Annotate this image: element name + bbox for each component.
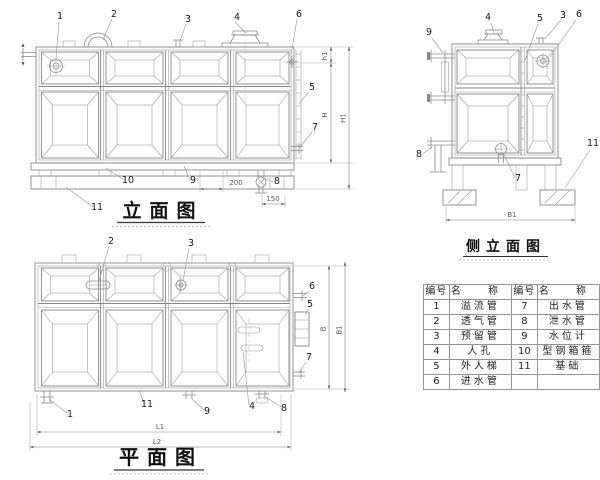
tank-panel (171, 52, 228, 84)
tank-panel (106, 52, 163, 84)
col-header-name: 名 称 (537, 285, 599, 300)
side-elevation-view: B1 9 4 5 3 6 8 7 11 侧立面图 (416, 9, 599, 260)
tank-panel (236, 92, 289, 158)
vent-pipe-arch (84, 33, 112, 47)
table-row: 1 溢流管 7 出水管 (424, 300, 600, 315)
drain-pipe-plan (255, 391, 269, 403)
overflow-pipe-stub (21, 43, 36, 66)
part-number: 10 (512, 345, 538, 360)
tank-panel (527, 50, 553, 84)
tank-panel (42, 92, 99, 158)
part-number: 11 (512, 360, 538, 375)
external-ladder-plan (295, 312, 309, 346)
part-number: 4 (424, 345, 450, 360)
table-row: 3 预留管 9 水位计 (424, 330, 600, 345)
drain-pipe (427, 137, 455, 172)
dimension-label: h1 (321, 52, 329, 61)
dimension-label: 150 (266, 195, 279, 203)
callout-number: 7 (306, 352, 312, 363)
part-number: 8 (512, 315, 538, 330)
dimension-label: H (321, 112, 329, 117)
part-number: 1 (424, 300, 450, 315)
col-header-number: 编号 (424, 285, 450, 300)
callout-number: 1 (57, 11, 63, 22)
tank-panel (171, 92, 228, 158)
callout-number: 5 (537, 13, 543, 24)
callout-number: 8 (416, 149, 422, 160)
col-header-name: 名 称 (449, 285, 511, 300)
drain-valve (255, 171, 267, 193)
dimension-label: B1 (507, 211, 516, 219)
tank-panel (42, 268, 99, 301)
tank-panel (457, 50, 519, 84)
callout-number: 11 (587, 138, 599, 149)
callout-number: 5 (309, 82, 315, 93)
callout-number: 1 (67, 409, 73, 420)
part-name: 溢流管 (449, 300, 511, 315)
drawing-canvas: h1 H H1 200 150 1 2 3 4 6 5 7 10 9 8 11 (0, 0, 600, 480)
dimension-label: B1 (336, 325, 344, 334)
callout-number: 9 (190, 175, 196, 186)
inlet-pipe-fitting (293, 290, 307, 301)
dimension-label: H1 (340, 113, 348, 123)
external-ladder (521, 51, 525, 150)
tank-panel (171, 268, 228, 301)
callout-number: 7 (312, 122, 318, 133)
reserve-pipe-stub (173, 40, 183, 47)
view-title: 平面图 (119, 445, 203, 469)
tank-panel (527, 94, 553, 153)
plan-dimensions: L1 L2 B B1 (30, 262, 349, 451)
tank-panel (236, 310, 289, 386)
callout-number: 11 (91, 202, 103, 213)
callout-number: 5 (307, 299, 313, 310)
elevation-view: h1 H H1 200 150 1 2 3 4 6 5 7 10 9 8 11 (21, 9, 353, 227)
drawing-sheet: h1 H H1 200 150 1 2 3 4 6 5 7 10 9 8 11 (0, 0, 600, 480)
callout-number: 6 (309, 281, 315, 292)
part-name: 进水管 (449, 375, 511, 390)
part-number: 6 (424, 375, 450, 390)
part-name: 泄水管 (537, 315, 599, 330)
tank-panel (171, 310, 228, 386)
callout-number: 4 (249, 401, 255, 412)
side-title: 侧立面图 (459, 238, 551, 260)
reserve-pipe-stub (536, 38, 546, 44)
outlet-pipe-fitting (293, 369, 305, 379)
callout-number: 8 (281, 403, 287, 414)
base-channel (31, 163, 294, 176)
callout-number: 8 (274, 176, 280, 187)
reserve-pipe-opening (174, 278, 188, 292)
part-name: 基础 (537, 360, 599, 375)
part-number: 5 (424, 360, 450, 375)
part-name: 水位计 (537, 330, 599, 345)
table-row: 5 外人梯 11 基础 (424, 360, 600, 375)
tank-panel (236, 268, 289, 301)
part-name: 型钢箱箍 (537, 345, 599, 360)
tank-panel (106, 268, 163, 301)
callout-number: 9 (426, 27, 432, 38)
part-number (512, 375, 538, 390)
plan-view: L1 L2 B B1 2 3 6 5 7 1 11 9 4 8 平面图 (30, 236, 349, 474)
manhole (478, 30, 508, 44)
plan-title: 平面图 (110, 445, 208, 474)
callout-number: 11 (141, 399, 153, 410)
level-gauge-plan (182, 391, 196, 399)
callout-number: 4 (485, 12, 491, 23)
tank-panel (457, 94, 519, 153)
tank-panel (42, 310, 99, 386)
part-name: 透气管 (449, 315, 511, 330)
view-title: 立面图 (122, 199, 203, 222)
part-name (537, 375, 599, 390)
manhole-plan (238, 318, 263, 362)
table-row: 6 进水管 (424, 375, 600, 390)
dimension-label: L1 (156, 423, 164, 431)
part-name: 外人梯 (449, 360, 511, 375)
parts-table: 编号 名 称 编号 名 称 1 溢流管 7 出水管 2 透气管 8 泄水管 3 … (423, 284, 600, 390)
callout-number: 2 (111, 9, 117, 20)
view-title: 侧立面图 (466, 238, 546, 255)
table-row: 2 透气管 8 泄水管 (424, 315, 600, 330)
foundation (31, 176, 294, 189)
callout-number: 2 (108, 236, 114, 247)
part-number: 9 (512, 330, 538, 345)
tank-panel (106, 92, 163, 158)
callout-number: 3 (560, 10, 566, 21)
dimension-label: B (320, 326, 328, 331)
external-ladder (296, 50, 301, 160)
part-name: 预留管 (449, 330, 511, 345)
callout-number: 3 (188, 238, 194, 249)
part-number: 7 (512, 300, 538, 315)
table-row: 4 人孔 10 型钢箱箍 (424, 345, 600, 360)
callout-number: 3 (185, 14, 191, 25)
tank-panel (106, 310, 163, 386)
table-header-row: 编号 名 称 编号 名 称 (424, 285, 600, 300)
callout-number: 4 (234, 12, 240, 23)
part-number: 3 (424, 330, 450, 345)
callout-number: 10 (122, 175, 134, 186)
callout-number: 9 (204, 406, 210, 417)
col-header-number: 编号 (512, 285, 538, 300)
water-level-gauge (427, 50, 455, 104)
part-number: 2 (424, 315, 450, 330)
side-dimensions: B1 (446, 206, 575, 224)
dimension-label: 200 (229, 179, 242, 187)
part-name: 人孔 (449, 345, 511, 360)
side-callouts: 9 4 5 3 6 8 7 11 (416, 9, 599, 188)
elevation-title: 立面图 (112, 199, 210, 227)
tank-panel (236, 52, 289, 84)
callout-number: 7 (515, 173, 521, 184)
part-name: 出水管 (537, 300, 599, 315)
outlet-pipe-opening (494, 142, 508, 163)
callout-number: 6 (576, 9, 582, 20)
callout-number: 6 (296, 9, 302, 20)
